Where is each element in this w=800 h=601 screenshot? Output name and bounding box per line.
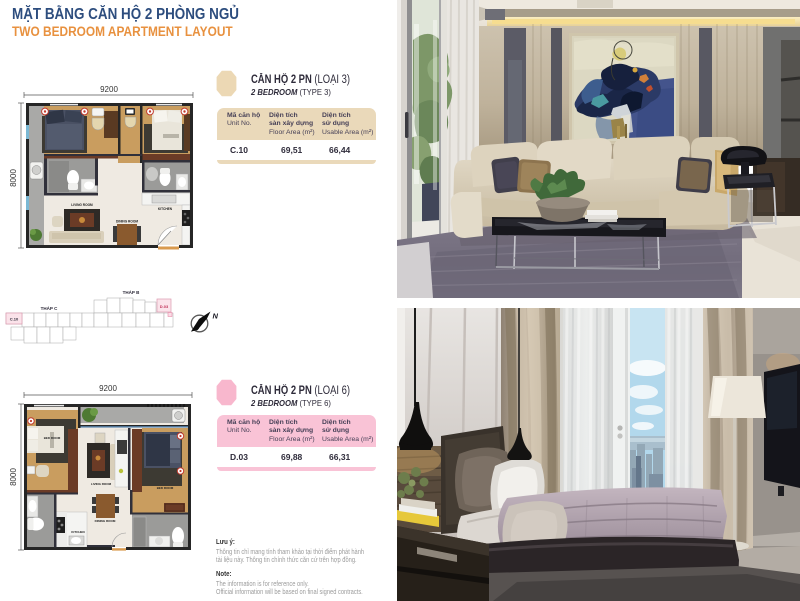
svg-text:KITCHEN: KITCHEN	[71, 530, 84, 534]
svg-text:9200: 9200	[99, 384, 117, 393]
svg-text:N: N	[213, 312, 219, 321]
svg-text:DINING ROOM: DINING ROOM	[116, 220, 138, 224]
svg-text:THÁP C: THÁP C	[41, 305, 58, 311]
svg-text:8000: 8000	[10, 468, 18, 486]
svg-text:DINING ROOM: DINING ROOM	[95, 519, 116, 523]
svg-text:BED ROOM: BED ROOM	[44, 436, 61, 440]
svg-text:KITCHEN: KITCHEN	[158, 207, 173, 211]
svg-text:9200: 9200	[100, 85, 118, 94]
svg-text:D.03: D.03	[160, 304, 169, 309]
svg-text:LIVING ROOM: LIVING ROOM	[71, 203, 93, 207]
svg-text:8000: 8000	[10, 169, 18, 187]
svg-text:C.10: C.10	[10, 317, 19, 322]
svg-text:BED ROOM: BED ROOM	[157, 486, 174, 490]
svg-text:LIVING ROOM: LIVING ROOM	[91, 482, 112, 486]
svg-text:THÁP B: THÁP B	[123, 289, 140, 295]
